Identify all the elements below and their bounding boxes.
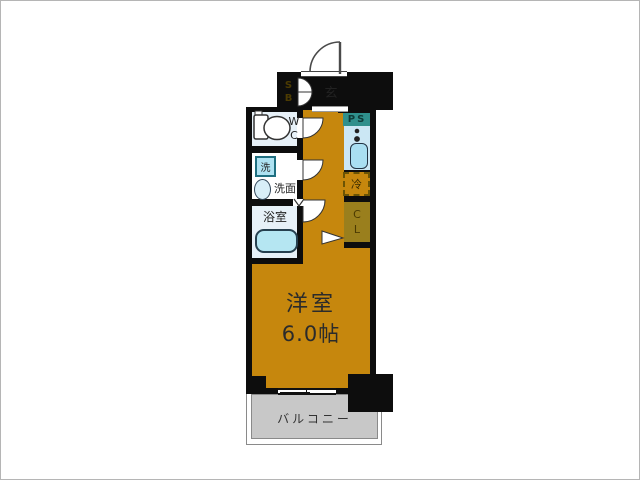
laundry-label: 洗 — [255, 156, 276, 177]
bathroom-label: 浴室 — [254, 209, 296, 224]
entrance-door-icon — [310, 42, 340, 74]
bath-folding-door-icon — [293, 199, 304, 206]
main-room-size: 6.0帖 — [282, 318, 340, 348]
room-door-swing-icon — [303, 200, 325, 222]
closet-label: C L — [344, 202, 370, 242]
wc-label: W C — [287, 114, 301, 144]
shoe-box-label: S B — [281, 77, 296, 106]
shoebox-doors-icon — [298, 78, 312, 106]
toilet-icon — [254, 111, 290, 140]
refrigerator-label: 冷 — [343, 172, 370, 196]
room-door-leaf-icon — [322, 231, 343, 244]
washroom-door-swing-icon — [303, 160, 323, 180]
entrance-label: 玄 — [313, 76, 349, 106]
main-room-label: 洋室 6.0帖 — [252, 286, 370, 348]
washroom-label: 洗面 — [271, 181, 299, 195]
stove-burners-icon — [354, 129, 360, 142]
main-room-name: 洋室 — [286, 286, 336, 318]
floor-plan: 玄 S B W C PS 洗 洗面 浴室 冷 C L 洋室 6.0帖 バルコニー — [0, 0, 640, 480]
wc-door-swing-icon — [303, 118, 323, 138]
balcony-label: バルコニー — [251, 408, 378, 428]
pipe-space-label: PS — [343, 113, 371, 126]
